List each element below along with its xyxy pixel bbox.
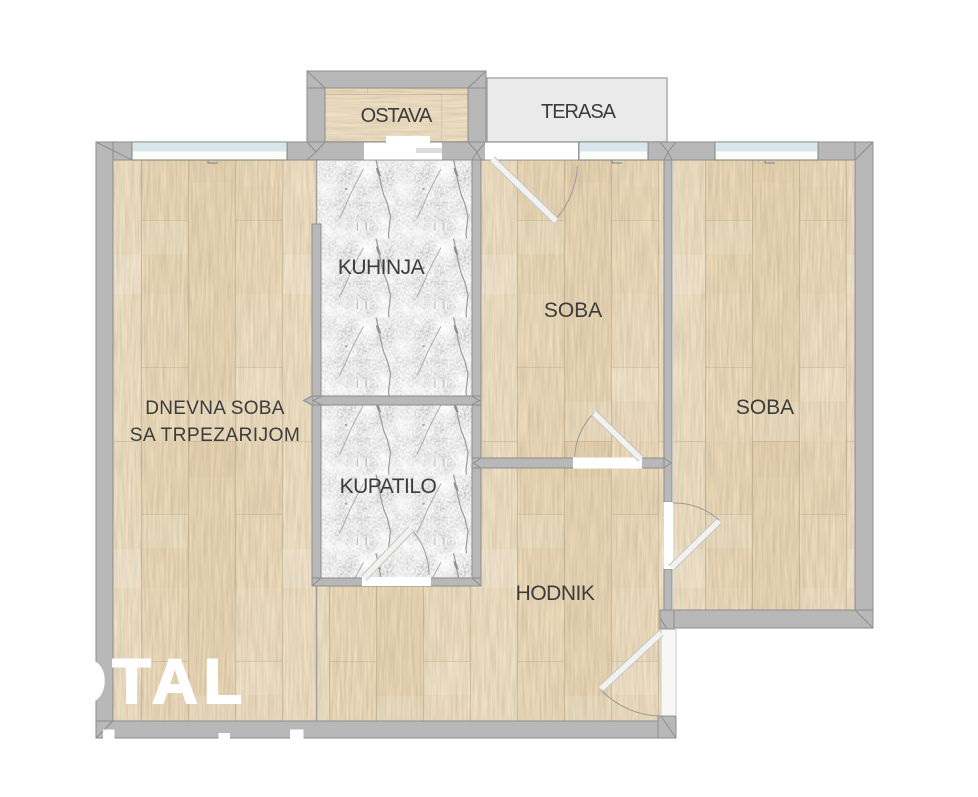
svg-text:KUHINJA: KUHINJA [338, 256, 425, 279]
svg-text:SOBA: SOBA [736, 396, 794, 419]
svg-text:TOTAL: TOTAL [14, 647, 248, 717]
svg-text:SOBA: SOBA [544, 299, 602, 322]
svg-text:TERASA: TERASA [541, 101, 617, 123]
svg-text:KUPATILO: KUPATILO [340, 475, 437, 498]
svg-text:DNEVNA SOBA: DNEVNA SOBA [145, 398, 285, 419]
svg-text:OSTAVA: OSTAVA [361, 105, 433, 127]
svg-text:SA TRPEZARIJOM: SA TRPEZARIJOM [130, 425, 301, 446]
svg-text:HODNIK: HODNIK [516, 582, 595, 605]
